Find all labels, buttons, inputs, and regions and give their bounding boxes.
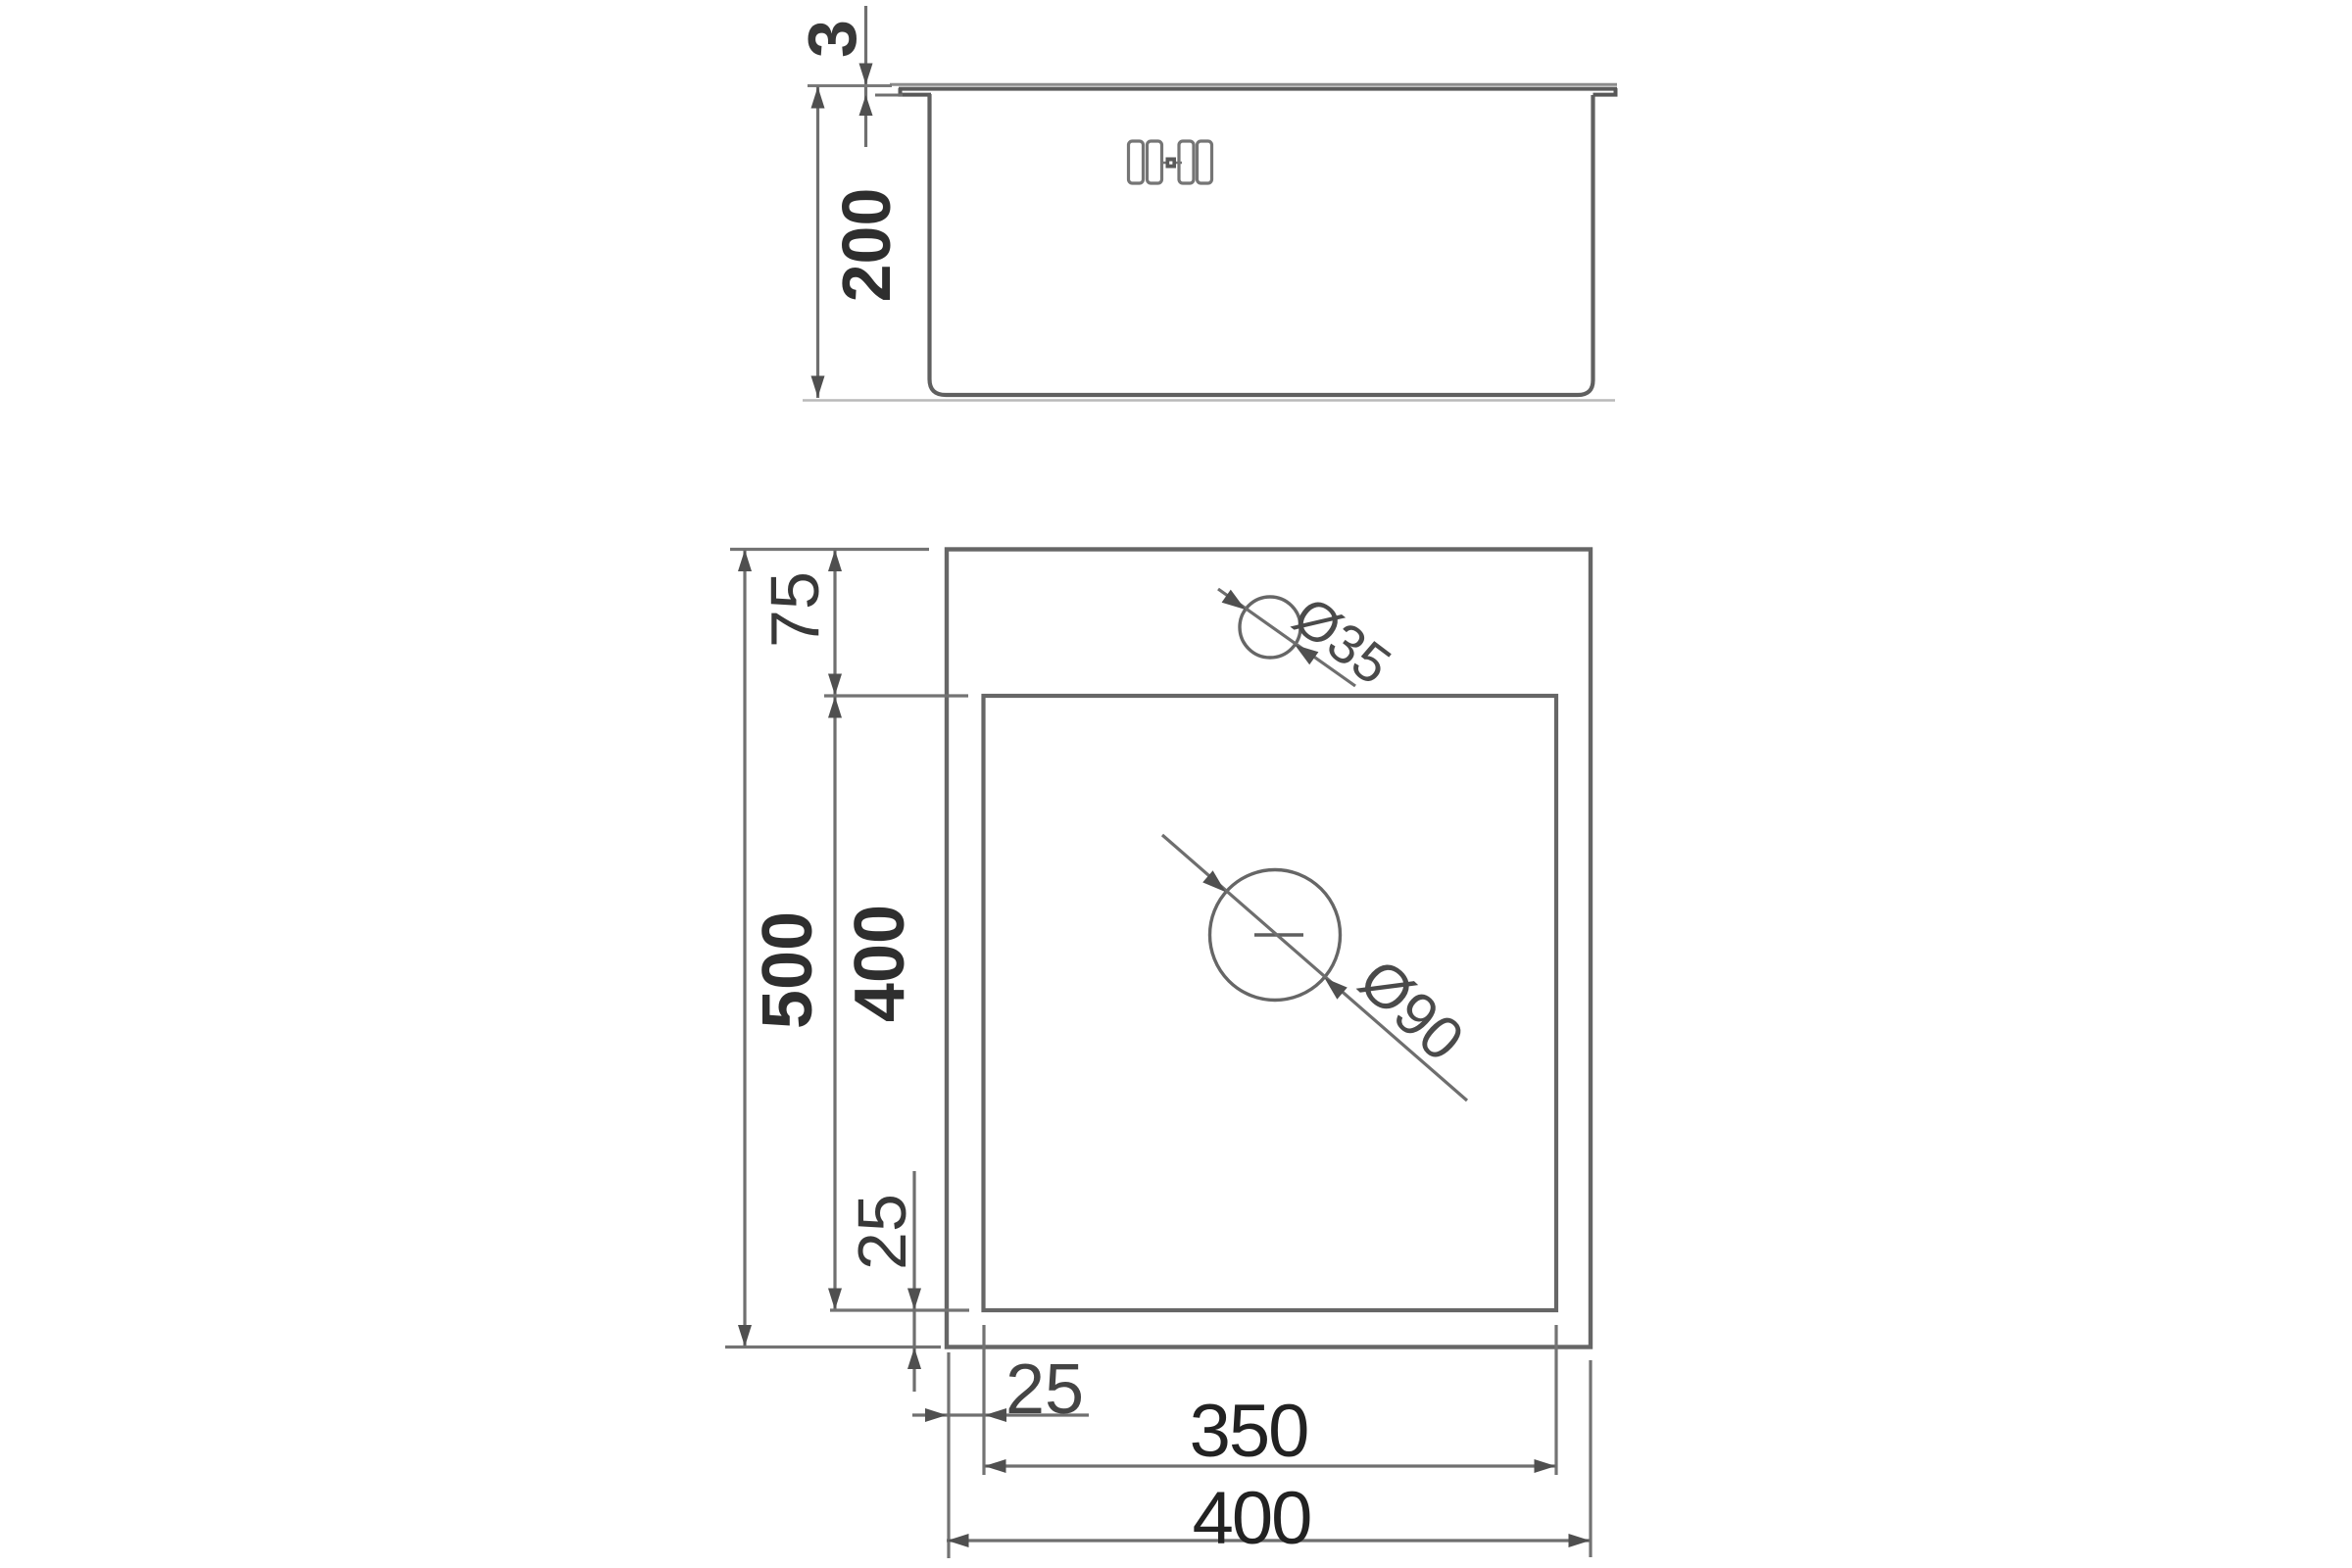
svg-text:200: 200 xyxy=(828,188,905,303)
svg-text:25: 25 xyxy=(844,1194,920,1270)
svg-text:350: 350 xyxy=(1190,1390,1308,1473)
svg-text:500: 500 xyxy=(749,911,827,1029)
svg-text:400: 400 xyxy=(841,905,919,1022)
svg-text:25: 25 xyxy=(1005,1350,1084,1429)
svg-text:3: 3 xyxy=(794,20,870,58)
svg-text:400: 400 xyxy=(1193,1477,1311,1560)
svg-text:75: 75 xyxy=(757,571,833,648)
